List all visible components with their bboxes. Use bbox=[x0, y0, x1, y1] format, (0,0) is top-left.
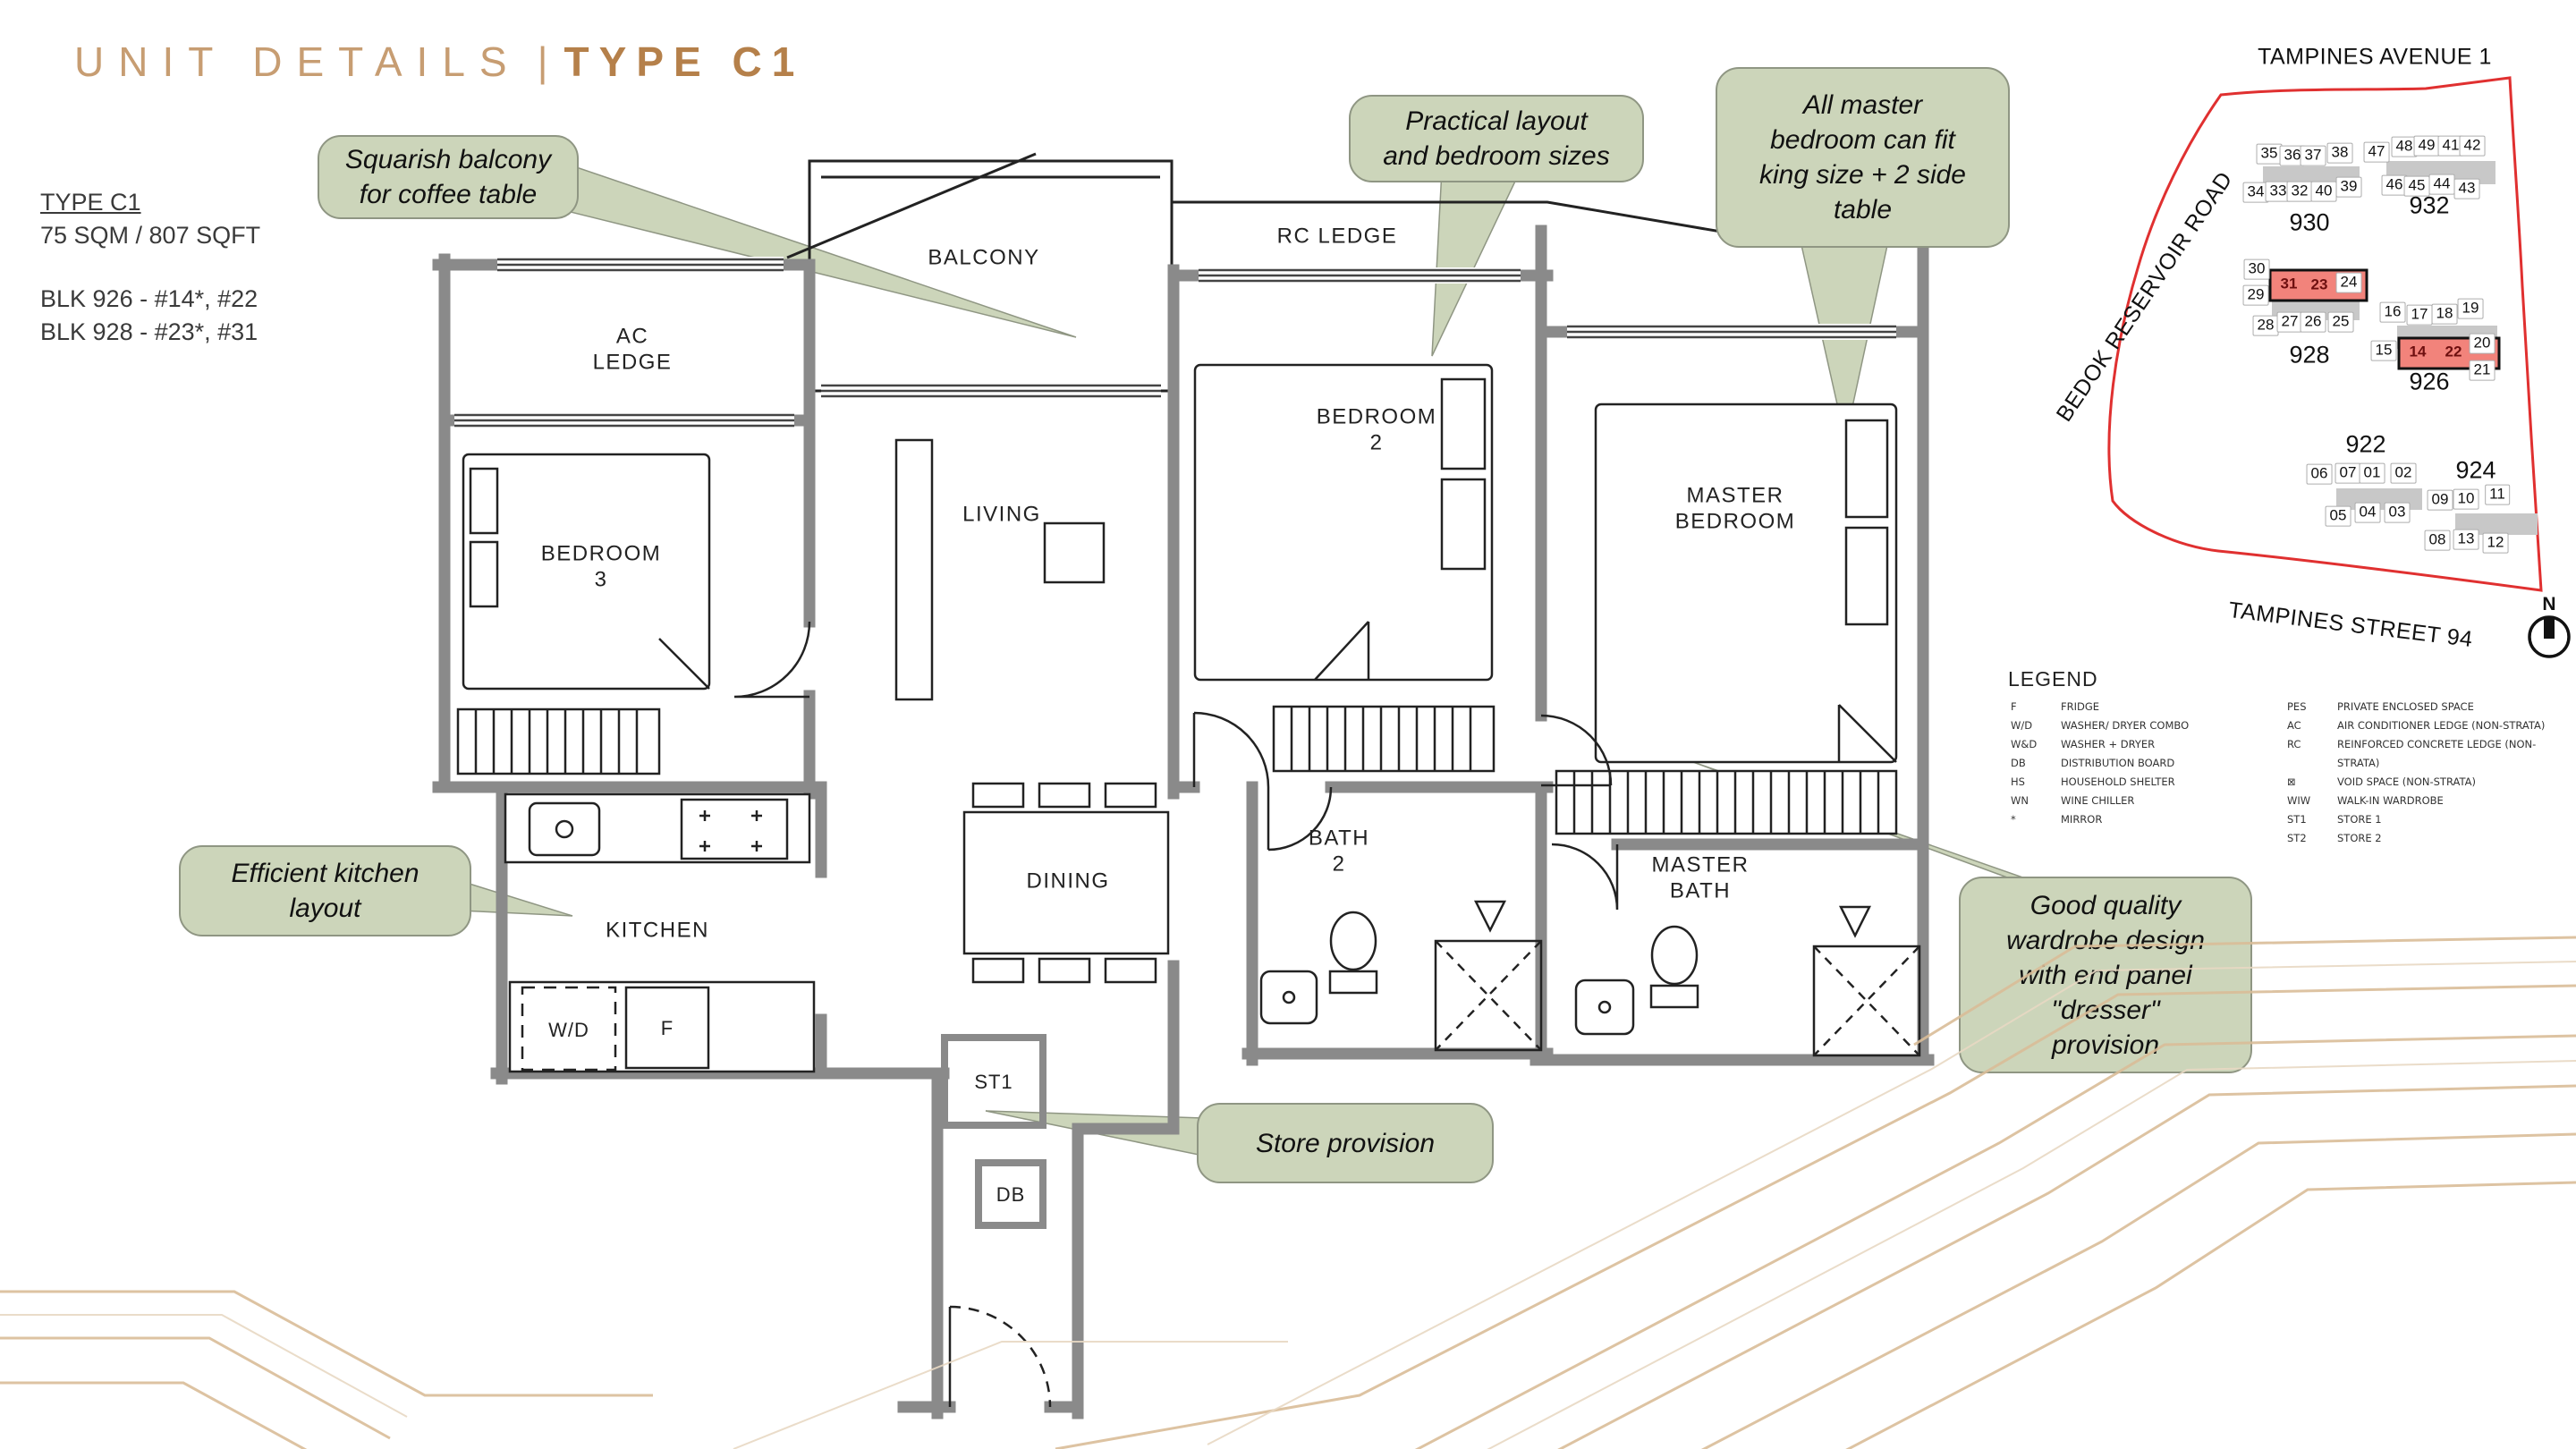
map-unit: 42 bbox=[2460, 136, 2486, 157]
legend-abbr: W/D bbox=[2011, 716, 2061, 735]
legend-row: W&DWASHER + DRYER bbox=[2011, 735, 2279, 754]
map-unit: 26 bbox=[2301, 312, 2326, 333]
map-unit: 27 bbox=[2277, 312, 2303, 333]
map-unit-highlighted: 23 bbox=[2308, 276, 2332, 295]
map-unit-highlighted: 31 bbox=[2277, 275, 2301, 294]
map-unit: 43 bbox=[2454, 179, 2480, 199]
label-fridge: F bbox=[661, 1017, 674, 1040]
map-unit: 17 bbox=[2407, 305, 2433, 326]
map-unit: 25 bbox=[2328, 312, 2354, 333]
room-label-living: LIVING bbox=[962, 501, 1041, 527]
legend-abbr: ST1 bbox=[2287, 810, 2337, 829]
compass-north-label: N bbox=[2542, 594, 2555, 615]
map-unit: 45 bbox=[2404, 176, 2430, 197]
callout-wardrobe: Good quality wardrobe design with end pa… bbox=[1959, 877, 2252, 1073]
legend-abbr: DB bbox=[2011, 754, 2061, 773]
room-label-master-bath: MASTER BATH bbox=[1651, 852, 1749, 905]
legend-row: PESPRIVATE ENCLOSED SPACE bbox=[2287, 698, 2573, 716]
legend-desc: PRIVATE ENCLOSED SPACE bbox=[2337, 698, 2474, 716]
legend-left-column: FFRIDGE W/DWASHER/ DRYER COMBO W&DWASHER… bbox=[2011, 698, 2279, 829]
callout-layout: Practical layout and bedroom sizes bbox=[1349, 95, 1644, 182]
room-label-bath2: BATH 2 bbox=[1309, 826, 1369, 878]
map-unit: 10 bbox=[2453, 489, 2479, 510]
map-unit: 19 bbox=[2458, 299, 2484, 319]
legend-desc: FRIDGE bbox=[2061, 698, 2099, 716]
map-unit: 21 bbox=[2470, 360, 2495, 381]
legend-desc: HOUSEHOLD SHELTER bbox=[2061, 773, 2175, 792]
callout-balcony: Squarish balcony for coffee table bbox=[318, 135, 579, 219]
block-label-924: 924 bbox=[2455, 457, 2495, 485]
page-title-type: TYPE C1 bbox=[564, 38, 805, 85]
legend-desc: STORE 2 bbox=[2337, 829, 2382, 848]
unit-area: 75 SQM / 807 SQFT bbox=[40, 219, 260, 252]
map-unit: 16 bbox=[2380, 302, 2406, 323]
map-unit: 12 bbox=[2483, 533, 2509, 554]
map-unit: 38 bbox=[2327, 143, 2353, 164]
legend-abbr: PES bbox=[2287, 698, 2337, 716]
room-label-dining: DINING bbox=[1027, 868, 1110, 894]
label-store1: ST1 bbox=[974, 1071, 1013, 1094]
legend-row: ST1STORE 1 bbox=[2287, 810, 2573, 829]
unit-type-label: TYPE C1 bbox=[40, 186, 260, 219]
map-unit: 15 bbox=[2371, 341, 2397, 361]
legend-row: RCREINFORCED CONCRETE LEDGE (NON-STRATA) bbox=[2287, 735, 2573, 773]
legend-abbr: RC bbox=[2287, 735, 2337, 773]
legend-title: LEGEND bbox=[2008, 667, 2098, 691]
legend-row: ST2STORE 2 bbox=[2287, 829, 2573, 848]
map-unit: 02 bbox=[2391, 463, 2417, 484]
legend-right-column: PESPRIVATE ENCLOSED SPACE ACAIR CONDITIO… bbox=[2287, 698, 2573, 848]
map-unit: 20 bbox=[2470, 334, 2495, 354]
legend-row: HSHOUSEHOLD SHELTER bbox=[2011, 773, 2279, 792]
map-unit: 47 bbox=[2364, 142, 2390, 163]
map-unit: 44 bbox=[2429, 174, 2455, 195]
map-unit-highlighted: 14 bbox=[2406, 343, 2430, 362]
legend-row: *MIRROR bbox=[2011, 810, 2279, 829]
legend-desc: STORE 1 bbox=[2337, 810, 2382, 829]
room-label-balcony: BALCONY bbox=[928, 244, 1039, 270]
map-unit: 11 bbox=[2485, 485, 2510, 505]
map-unit-highlighted: 22 bbox=[2442, 343, 2466, 362]
page-title-left: UNIT DETAILS bbox=[74, 38, 521, 85]
legend-desc: MIRROR bbox=[2061, 810, 2102, 829]
label-washer-dryer: W/D bbox=[548, 1019, 589, 1042]
block-label-922: 922 bbox=[2345, 431, 2385, 459]
map-unit: 18 bbox=[2432, 304, 2458, 325]
map-unit: 07 bbox=[2335, 463, 2361, 484]
callout-kitchen: Efficient kitchen layout bbox=[179, 845, 471, 936]
map-unit: 49 bbox=[2414, 136, 2440, 157]
unit-info: TYPE C1 75 SQM / 807 SQFT BLK 926 - #14*… bbox=[40, 186, 260, 349]
legend-abbr: ST2 bbox=[2287, 829, 2337, 848]
legend-row: FFRIDGE bbox=[2011, 698, 2279, 716]
legend-abbr: * bbox=[2011, 810, 2061, 829]
legend-abbr: AC bbox=[2287, 716, 2337, 735]
page-title-separator: | bbox=[538, 38, 548, 85]
map-unit: 03 bbox=[2385, 503, 2411, 523]
map-unit: 35 bbox=[2257, 144, 2283, 165]
callout-master-bedroom: All master bedroom can fit king size + 2… bbox=[1716, 67, 2010, 248]
block-label-930: 930 bbox=[2289, 209, 2329, 237]
void-space-symbol: ⊠ bbox=[2287, 773, 2337, 792]
map-unit: 32 bbox=[2287, 182, 2313, 202]
unit-block-line: BLK 928 - #23*, #31 bbox=[40, 316, 260, 349]
legend-row: WNWINE CHILLER bbox=[2011, 792, 2279, 810]
legend-desc: DISTRIBUTION BOARD bbox=[2061, 754, 2174, 773]
legend-row: ⊠VOID SPACE (NON-STRATA) bbox=[2287, 773, 2573, 792]
room-label-ac-ledge: AC LEDGE bbox=[593, 324, 673, 377]
room-label-master-bedroom: MASTER BEDROOM bbox=[1675, 483, 1796, 536]
map-unit: 39 bbox=[2336, 177, 2362, 198]
map-unit: 30 bbox=[2244, 259, 2270, 280]
legend-desc: WASHER + DRYER bbox=[2061, 735, 2155, 754]
legend-row: W/DWASHER/ DRYER COMBO bbox=[2011, 716, 2279, 735]
map-unit: 05 bbox=[2326, 506, 2351, 527]
block-label-926: 926 bbox=[2409, 369, 2449, 396]
road-label-tampines-avenue-1: TAMPINES AVENUE 1 bbox=[2258, 45, 2492, 71]
room-label-bedroom2: BEDROOM 2 bbox=[1317, 404, 1437, 457]
map-unit: 01 bbox=[2360, 463, 2385, 484]
room-label-bedroom3: BEDROOM 3 bbox=[541, 541, 662, 594]
page-title: UNIT DETAILS|TYPE C1 bbox=[74, 38, 804, 86]
legend-abbr: W&D bbox=[2011, 735, 2061, 754]
map-unit: 28 bbox=[2253, 316, 2279, 336]
map-unit: 29 bbox=[2243, 285, 2269, 306]
legend-row: WIWWALK-IN WARDROBE bbox=[2287, 792, 2573, 810]
legend-desc: WALK-IN WARDROBE bbox=[2337, 792, 2444, 810]
legend-row: ACAIR CONDITIONER LEDGE (NON-STRATA) bbox=[2287, 716, 2573, 735]
label-distribution-board: DB bbox=[996, 1183, 1026, 1207]
map-unit: 06 bbox=[2307, 464, 2333, 485]
room-label-kitchen: KITCHEN bbox=[606, 917, 709, 943]
legend-desc: AIR CONDITIONER LEDGE (NON-STRATA) bbox=[2337, 716, 2545, 735]
map-unit: 09 bbox=[2428, 490, 2453, 511]
unit-block-line: BLK 926 - #14*, #22 bbox=[40, 283, 260, 316]
block-label-928: 928 bbox=[2289, 342, 2329, 369]
map-unit: 08 bbox=[2425, 530, 2451, 551]
room-label-rc-ledge: RC LEDGE bbox=[1277, 223, 1398, 249]
compass-icon bbox=[2529, 617, 2569, 657]
map-unit: 37 bbox=[2301, 146, 2326, 166]
map-unit: 13 bbox=[2453, 530, 2479, 550]
legend-abbr: WN bbox=[2011, 792, 2061, 810]
map-unit: 40 bbox=[2311, 182, 2337, 202]
map-unit: 04 bbox=[2355, 503, 2381, 523]
legend-desc: WASHER/ DRYER COMBO bbox=[2061, 716, 2189, 735]
furniture bbox=[458, 365, 1919, 1072]
legend-desc: REINFORCED CONCRETE LEDGE (NON-STRATA) bbox=[2337, 735, 2573, 773]
legend-desc: WINE CHILLER bbox=[2061, 792, 2134, 810]
legend-abbr: F bbox=[2011, 698, 2061, 716]
legend-row: DBDISTRIBUTION BOARD bbox=[2011, 754, 2279, 773]
legend-abbr: WIW bbox=[2287, 792, 2337, 810]
legend-abbr: HS bbox=[2011, 773, 2061, 792]
legend-desc: VOID SPACE (NON-STRATA) bbox=[2337, 773, 2476, 792]
callout-store: Store provision bbox=[1197, 1103, 1494, 1183]
map-unit: 24 bbox=[2336, 273, 2362, 293]
